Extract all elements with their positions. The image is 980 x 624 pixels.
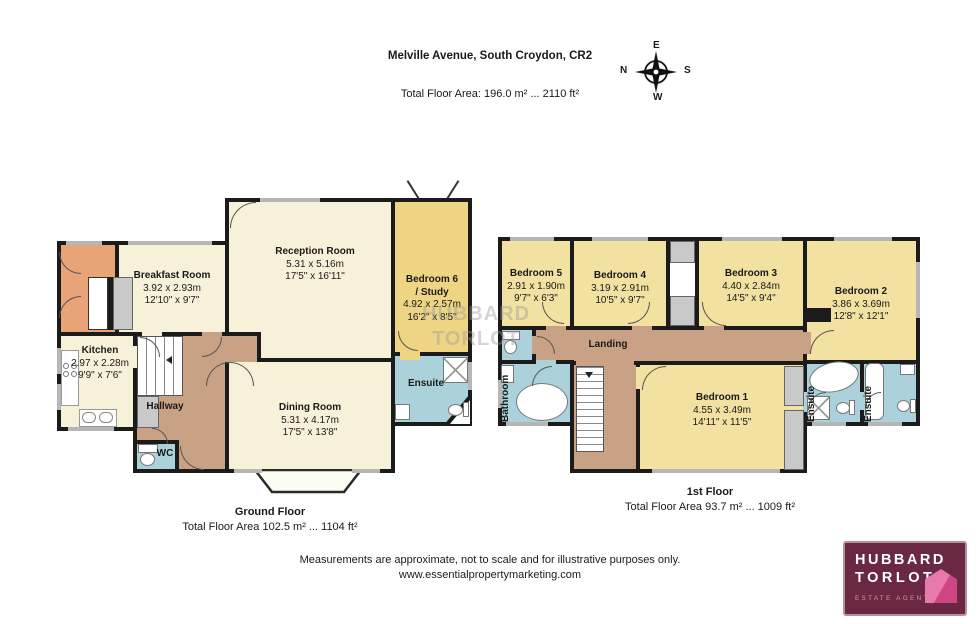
door-opening xyxy=(400,352,420,360)
label-bedroom3: Bedroom 3 4.40 x 2.84m 14'5" x 9'4" xyxy=(697,268,805,306)
compass-rose-icon: E N S W xyxy=(620,40,692,108)
label-ensuite-b: Ensuite xyxy=(863,368,874,422)
label-wc: WC xyxy=(150,448,180,461)
label-bedroom4: Bedroom 4 3.19 x 2.91m 10'5" x 9'7" xyxy=(574,270,666,308)
total-floor-area: Total Floor Area: 196.0 m² ... 2110 ft² xyxy=(0,88,980,100)
label-bedroom2: Bedroom 2 3.86 x 3.69m 12'8" x 12'1" xyxy=(805,286,917,324)
window xyxy=(722,237,782,241)
door-opening xyxy=(632,326,652,334)
label-dining: Dining Room 5.31 x 4.17m 17'5" x 13'8" xyxy=(235,402,385,440)
compass-south-label: S xyxy=(684,65,691,76)
stairs-direction-arrow xyxy=(166,356,172,364)
sink-basin xyxy=(82,412,96,423)
window xyxy=(812,422,846,426)
first-floor-caption: 1st Floor Total Floor Area 93.7 m² ... 1… xyxy=(540,485,880,515)
website-text: www.essentialpropertymarketing.com xyxy=(0,569,980,581)
label-bedroom1: Bedroom 1 4.55 x 3.49m 14'11" x 11'5" xyxy=(648,392,796,430)
window xyxy=(66,241,102,245)
label-ensuite-a: Ensuite xyxy=(806,368,817,422)
window xyxy=(68,427,114,431)
watermark: HUBBARD TORLOT xyxy=(418,302,534,352)
logo-name-line2: TORLOT xyxy=(855,570,935,586)
toilet-icon xyxy=(448,404,463,416)
window xyxy=(128,241,212,245)
door-opening xyxy=(546,326,566,334)
compass-west-label: W xyxy=(653,92,662,103)
closet-shelf xyxy=(670,296,695,326)
toilet-cistern-icon xyxy=(910,399,916,413)
window xyxy=(352,469,380,473)
french-door-leaf xyxy=(447,180,460,199)
window xyxy=(592,237,648,241)
window xyxy=(868,422,902,426)
door-opening xyxy=(704,326,724,334)
label-bedroom5: Bedroom 5 2.91 x 1.90m 9'7" x 6'3" xyxy=(500,268,572,306)
window xyxy=(652,469,780,473)
staircase-first xyxy=(576,366,604,452)
logo-name-line1: HUBBARD xyxy=(855,552,946,568)
window xyxy=(834,237,892,241)
agency-logo: HUBBARD TORLOT ESTATE AGENTS xyxy=(843,541,967,616)
compass-north-label: N xyxy=(620,65,627,76)
toilet-cistern-icon xyxy=(463,402,469,417)
compass-star-icon xyxy=(634,50,678,94)
compass-east-label: E xyxy=(653,40,660,51)
floorplan-page: Melville Avenue, South Croydon, CR2 Tota… xyxy=(0,0,980,624)
page-title: Melville Avenue, South Croydon, CR2 xyxy=(0,50,980,62)
logo-tagline: ESTATE AGENTS xyxy=(855,595,936,602)
french-door-leaf xyxy=(407,180,420,199)
stairs-down-arrow xyxy=(585,372,593,378)
toilet-icon xyxy=(836,402,850,414)
disclaimer-text: Measurements are approximate, not to sca… xyxy=(0,554,980,566)
label-landing: Landing xyxy=(558,339,658,352)
label-breakfast: Breakfast Room 3.92 x 2.93m 12'10" x 9'7… xyxy=(130,270,214,308)
window xyxy=(506,422,548,426)
label-kitchen: Kitchen 2.97 x 2.28m 9'9" x 7'6" xyxy=(58,345,142,383)
corner-bath-icon xyxy=(516,383,568,421)
window xyxy=(510,237,554,241)
closet-shelf xyxy=(670,241,695,263)
ground-floor-caption: Ground Floor Total Floor Area 102.5 m² .… xyxy=(100,505,440,535)
window xyxy=(260,198,320,202)
basin-icon xyxy=(395,404,410,420)
sink-basin xyxy=(99,412,113,423)
window xyxy=(468,362,472,390)
label-hallway: Hallway xyxy=(120,401,210,414)
window xyxy=(234,469,262,473)
label-bathroom: Bathroom xyxy=(500,368,511,422)
label-reception: Reception Room 5.31 x 5.16m 17'5" x 16'1… xyxy=(245,246,385,284)
basin-icon xyxy=(900,364,915,375)
bay-window xyxy=(252,469,364,495)
label-ensuite-ground: Ensuite xyxy=(393,378,459,391)
toilet-icon xyxy=(897,400,910,412)
chimney-recess xyxy=(88,277,108,330)
